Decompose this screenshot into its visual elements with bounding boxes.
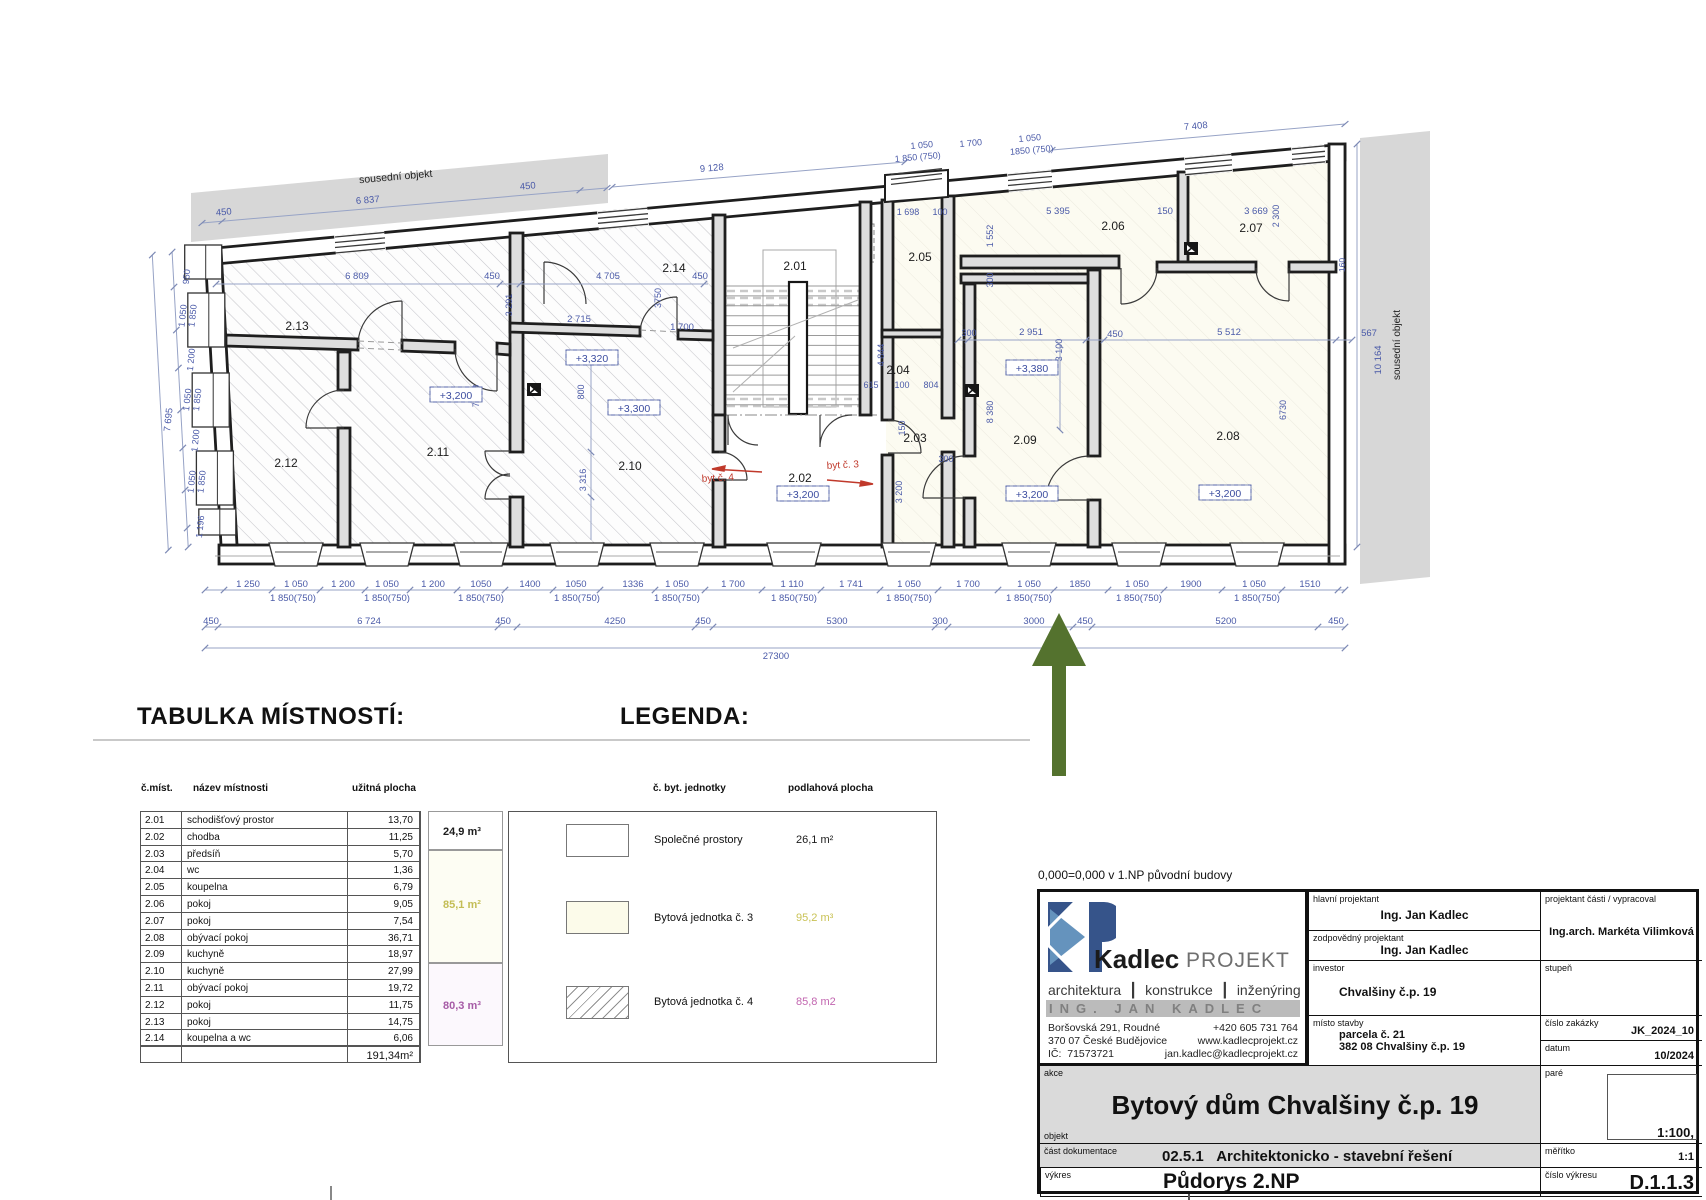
svg-text:450: 450 bbox=[495, 616, 511, 627]
svg-text:1400: 1400 bbox=[519, 579, 540, 590]
svg-text:2 951: 2 951 bbox=[1019, 327, 1043, 338]
svg-text:+3,200: +3,200 bbox=[787, 489, 820, 501]
svg-text:615: 615 bbox=[863, 380, 878, 390]
svg-text:1 850(750): 1 850(750) bbox=[1006, 593, 1052, 604]
svg-text:+3,200: +3,200 bbox=[440, 390, 473, 402]
svg-text:2.07: 2.07 bbox=[1239, 221, 1263, 235]
svg-text:1 850(750): 1 850(750) bbox=[654, 593, 700, 604]
svg-text:804: 804 bbox=[923, 380, 938, 390]
svg-text:1510: 1510 bbox=[1299, 579, 1320, 590]
svg-text:2.13: 2.13 bbox=[285, 319, 309, 333]
svg-text:2.02: 2.02 bbox=[788, 471, 812, 485]
svg-text:1 741: 1 741 bbox=[839, 579, 863, 590]
svg-text:6 809: 6 809 bbox=[345, 271, 369, 282]
svg-text:100: 100 bbox=[932, 207, 947, 217]
svg-text:1 850(750): 1 850(750) bbox=[458, 593, 504, 604]
svg-text:1 200: 1 200 bbox=[189, 429, 201, 452]
svg-text:8 380: 8 380 bbox=[985, 401, 995, 424]
svg-text:800: 800 bbox=[576, 384, 586, 399]
svg-text:+3,200: +3,200 bbox=[1209, 488, 1242, 500]
svg-text:5 395: 5 395 bbox=[1046, 206, 1070, 217]
svg-text:1 850(750): 1 850(750) bbox=[771, 593, 817, 604]
svg-text:2.09: 2.09 bbox=[1013, 433, 1037, 447]
svg-text:450: 450 bbox=[484, 271, 500, 282]
svg-text:2.05: 2.05 bbox=[908, 250, 932, 264]
svg-text:1 200: 1 200 bbox=[421, 579, 445, 590]
svg-text:1 250: 1 250 bbox=[236, 579, 260, 590]
svg-text:+3,320: +3,320 bbox=[576, 353, 609, 365]
svg-text:2.11: 2.11 bbox=[427, 445, 450, 459]
svg-text:3 200: 3 200 bbox=[894, 481, 904, 504]
svg-text:byt č. 4: byt č. 4 bbox=[701, 472, 734, 485]
svg-text:300: 300 bbox=[938, 454, 953, 464]
svg-text:4250: 4250 bbox=[604, 616, 625, 627]
svg-text:2.10: 2.10 bbox=[618, 459, 642, 473]
svg-text:3 291: 3 291 bbox=[504, 294, 514, 317]
svg-text:7 695: 7 695 bbox=[162, 407, 175, 432]
svg-text:5200: 5200 bbox=[1215, 616, 1236, 627]
svg-text:3 669: 3 669 bbox=[1244, 206, 1268, 217]
svg-text:2.03: 2.03 bbox=[903, 431, 927, 445]
svg-text:1 850 (750): 1 850 (750) bbox=[894, 150, 941, 164]
svg-text:3000: 3000 bbox=[1023, 616, 1044, 627]
svg-text:3 100: 3 100 bbox=[1054, 339, 1064, 362]
svg-text:1 050: 1 050 bbox=[1242, 579, 1266, 590]
svg-text:1050: 1050 bbox=[565, 579, 586, 590]
svg-text:1 552: 1 552 bbox=[985, 225, 995, 248]
svg-text:2 715: 2 715 bbox=[567, 314, 591, 325]
svg-text:4 705: 4 705 bbox=[596, 271, 620, 282]
svg-text:450: 450 bbox=[215, 206, 232, 218]
svg-text:1 200: 1 200 bbox=[331, 579, 355, 590]
svg-text:byt č. 3: byt č. 3 bbox=[826, 459, 859, 472]
svg-text:450: 450 bbox=[1077, 616, 1093, 627]
svg-text:950: 950 bbox=[181, 269, 193, 285]
svg-text:1 200: 1 200 bbox=[185, 348, 197, 371]
svg-text:2.12: 2.12 bbox=[274, 456, 298, 470]
svg-text:450: 450 bbox=[692, 271, 708, 282]
svg-text:1050: 1050 bbox=[470, 579, 491, 590]
svg-text:10 164: 10 164 bbox=[1373, 345, 1384, 374]
svg-text:sousední objekt: sousední objekt bbox=[1392, 310, 1403, 380]
svg-text:300: 300 bbox=[961, 328, 976, 338]
svg-text:1 850(750): 1 850(750) bbox=[1234, 593, 1280, 604]
svg-text:567: 567 bbox=[1361, 328, 1377, 339]
svg-text:2.04: 2.04 bbox=[886, 363, 910, 377]
svg-text:3750: 3750 bbox=[653, 288, 663, 308]
svg-text:3 316: 3 316 bbox=[578, 469, 588, 492]
svg-text:2.08: 2.08 bbox=[1216, 429, 1240, 443]
svg-text:6730: 6730 bbox=[1278, 400, 1288, 420]
svg-text:6 724: 6 724 bbox=[357, 616, 381, 627]
svg-text:450: 450 bbox=[203, 616, 219, 627]
svg-text:5 512: 5 512 bbox=[1217, 327, 1241, 338]
svg-text:1 850(750): 1 850(750) bbox=[1116, 593, 1162, 604]
svg-text:160: 160 bbox=[1337, 258, 1347, 272]
svg-text:1 050: 1 050 bbox=[1017, 579, 1041, 590]
svg-text:300: 300 bbox=[985, 272, 995, 287]
svg-text:2.14: 2.14 bbox=[662, 261, 686, 275]
svg-text:1 850(750): 1 850(750) bbox=[270, 593, 316, 604]
svg-text:1 050: 1 050 bbox=[665, 579, 689, 590]
svg-text:+3,380: +3,380 bbox=[1016, 363, 1049, 375]
svg-text:1336: 1336 bbox=[622, 579, 643, 590]
svg-text:2.01: 2.01 bbox=[783, 259, 807, 273]
svg-text:1 050: 1 050 bbox=[284, 579, 308, 590]
svg-text:1 698: 1 698 bbox=[897, 207, 920, 217]
svg-text:2 300: 2 300 bbox=[1271, 205, 1281, 228]
svg-text:1 050: 1 050 bbox=[1125, 579, 1149, 590]
svg-text:1 050: 1 050 bbox=[1018, 132, 1041, 144]
svg-text:1 700: 1 700 bbox=[956, 579, 980, 590]
svg-text:1 850(750): 1 850(750) bbox=[364, 593, 410, 604]
svg-text:1850: 1850 bbox=[1069, 579, 1090, 590]
svg-text:1850 (750): 1850 (750) bbox=[1010, 143, 1054, 157]
svg-text:1 850(750): 1 850(750) bbox=[886, 593, 932, 604]
svg-text:150: 150 bbox=[1157, 206, 1173, 217]
svg-text:1 050: 1 050 bbox=[375, 579, 399, 590]
svg-text:450: 450 bbox=[695, 616, 711, 627]
svg-text:1900: 1900 bbox=[1180, 579, 1201, 590]
svg-text:450: 450 bbox=[519, 180, 536, 192]
svg-text:1 700: 1 700 bbox=[959, 137, 982, 149]
svg-text:450: 450 bbox=[1328, 616, 1344, 627]
svg-text:9 128: 9 128 bbox=[699, 162, 724, 175]
svg-text:5300: 5300 bbox=[826, 616, 847, 627]
svg-text:1 050: 1 050 bbox=[897, 579, 921, 590]
svg-text:1 700: 1 700 bbox=[721, 579, 745, 590]
svg-text:450: 450 bbox=[1107, 329, 1123, 340]
svg-text:7 408: 7 408 bbox=[1183, 120, 1208, 133]
svg-text:2.06: 2.06 bbox=[1101, 219, 1125, 233]
svg-text:1 110: 1 110 bbox=[780, 579, 803, 590]
svg-text:100: 100 bbox=[894, 380, 909, 390]
svg-text:+3,200: +3,200 bbox=[1016, 489, 1049, 501]
svg-text:300: 300 bbox=[932, 616, 948, 627]
svg-text:1 050: 1 050 bbox=[910, 139, 933, 151]
svg-text:+3,300: +3,300 bbox=[618, 403, 651, 415]
svg-text:1 850(750): 1 850(750) bbox=[554, 593, 600, 604]
svg-text:6 837: 6 837 bbox=[355, 194, 380, 207]
svg-text:1 700: 1 700 bbox=[670, 322, 694, 333]
svg-text:27300: 27300 bbox=[763, 651, 789, 662]
svg-text:4 844: 4 844 bbox=[876, 344, 886, 367]
